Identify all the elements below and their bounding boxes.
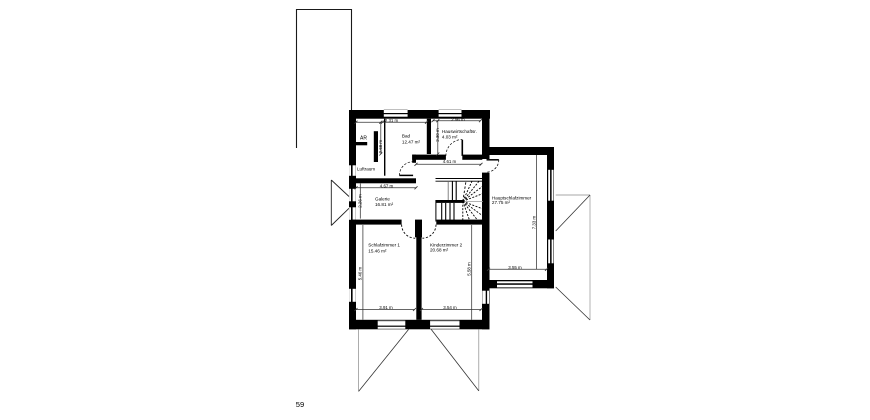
svg-text:16.81 m²: 16.81 m²: [375, 202, 394, 207]
svg-text:5.46 m: 5.46 m: [358, 266, 363, 280]
svg-text:15.46 m²: 15.46 m²: [368, 249, 387, 254]
svg-text:Luftraum: Luftraum: [357, 166, 375, 171]
svg-text:Bad: Bad: [402, 134, 411, 139]
svg-text:7.33 m: 7.33 m: [531, 215, 536, 229]
svg-text:12.47 m²: 12.47 m²: [402, 139, 421, 144]
svg-text:27.75 m²: 27.75 m²: [492, 200, 511, 205]
svg-text:5.58 m: 5.58 m: [467, 262, 472, 276]
svg-text:59: 59: [296, 400, 304, 409]
svg-text:4.03 m²: 4.03 m²: [442, 135, 458, 140]
svg-text:2.30 m: 2.30 m: [435, 128, 440, 142]
svg-text:20.68 m²: 20.68 m²: [430, 248, 449, 253]
svg-text:Schlafzimmer 1: Schlafzimmer 1: [368, 243, 400, 248]
svg-text:4.67 m: 4.67 m: [380, 183, 394, 188]
svg-text:2.31 m: 2.31 m: [385, 118, 399, 123]
svg-text:2.26 m: 2.26 m: [358, 194, 363, 208]
svg-text:3.55 m: 3.55 m: [508, 265, 522, 270]
svg-text:2.68 m: 2.68 m: [378, 140, 383, 154]
svg-text:AR: AR: [360, 136, 367, 142]
svg-text:4.61 m: 4.61 m: [443, 159, 457, 164]
svg-text:Hauswirtschaftsr.: Hauswirtschaftsr.: [442, 129, 477, 134]
svg-text:3.91 m: 3.91 m: [379, 305, 393, 310]
svg-text:3.54 m: 3.54 m: [443, 305, 457, 310]
svg-text:2.96 m: 2.96 m: [451, 117, 465, 122]
svg-text:Galerie: Galerie: [375, 197, 390, 202]
